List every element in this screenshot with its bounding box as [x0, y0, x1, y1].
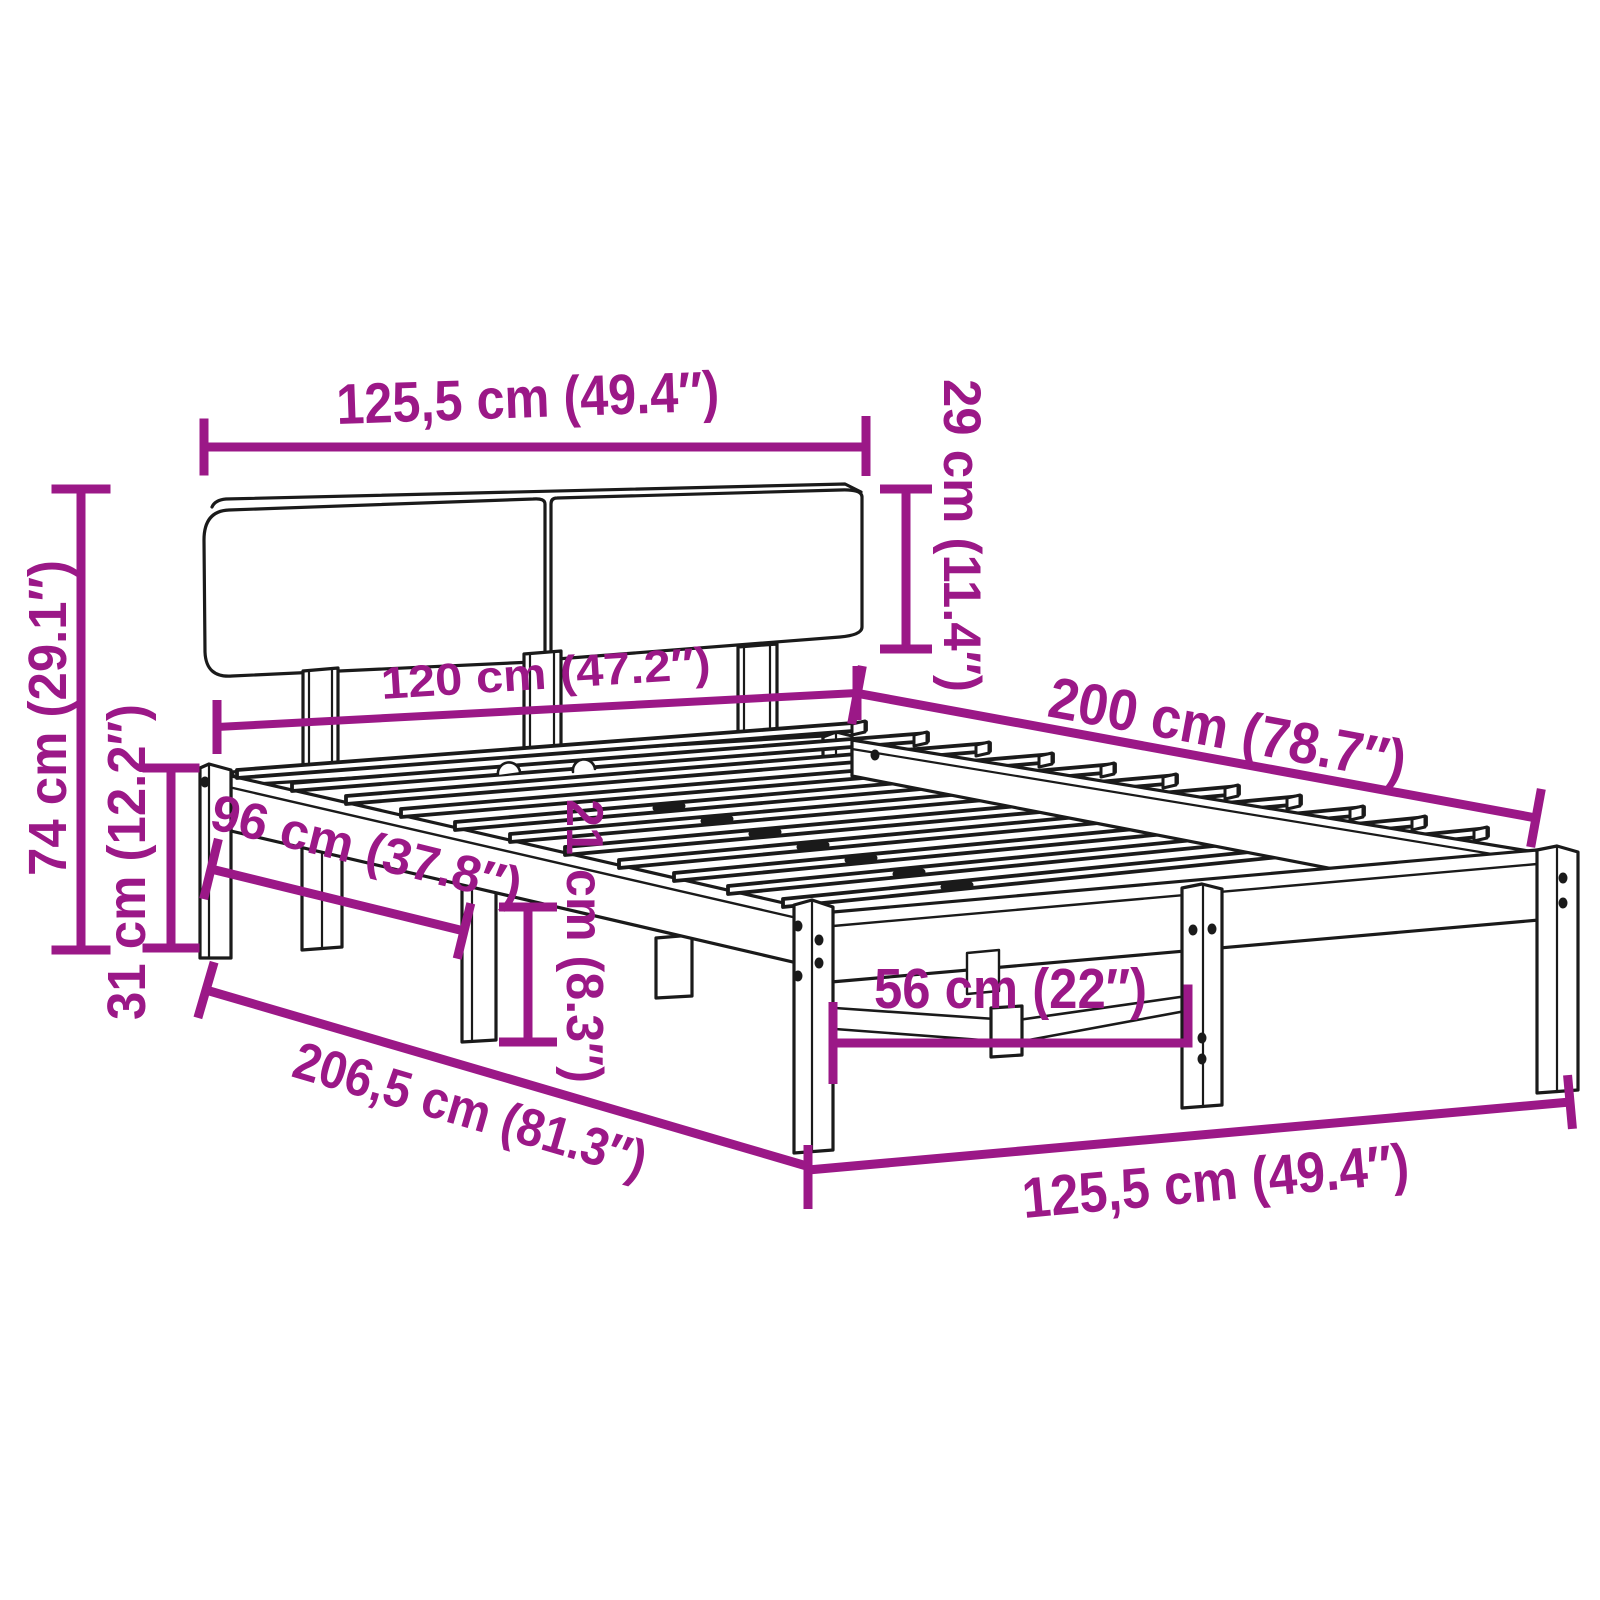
svg-text:21 cm (8.3″): 21 cm (8.3″) — [555, 799, 613, 1083]
svg-text:31 cm (12.2″): 31 cm (12.2″) — [97, 704, 157, 1020]
svg-text:125,5 cm (49.4″): 125,5 cm (49.4″) — [335, 360, 720, 437]
svg-text:29 cm (11.4″): 29 cm (11.4″) — [932, 379, 991, 692]
svg-text:74 cm (29.1″): 74 cm (29.1″) — [18, 560, 78, 876]
svg-text:56 cm (22″): 56 cm (22″) — [874, 957, 1147, 1021]
